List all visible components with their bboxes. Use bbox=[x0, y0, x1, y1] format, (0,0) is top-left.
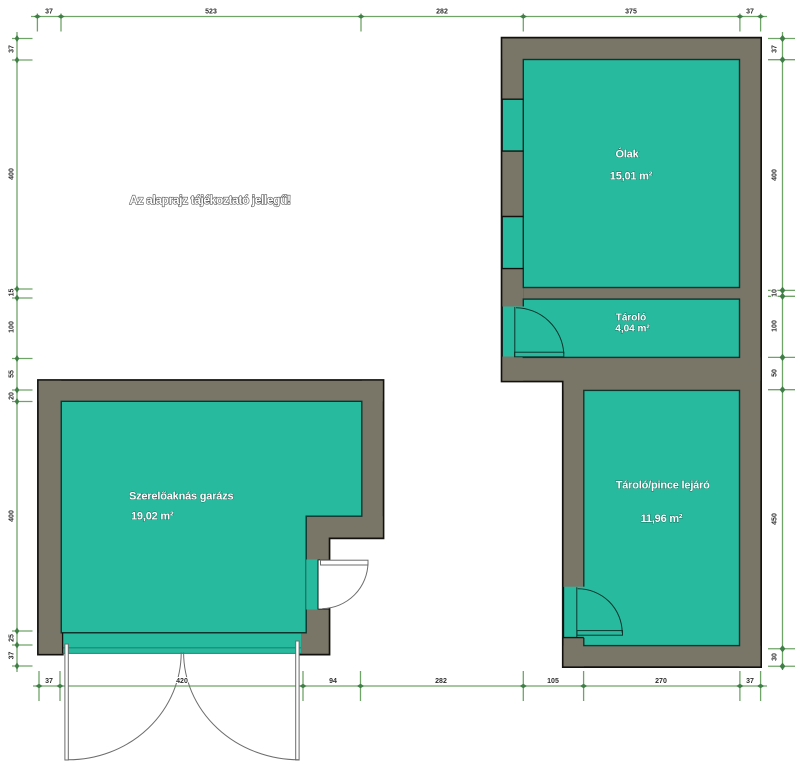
svg-text:11,96 m²: 11,96 m² bbox=[641, 513, 683, 525]
svg-text:37: 37 bbox=[772, 45, 779, 53]
svg-text:37: 37 bbox=[746, 678, 754, 685]
svg-text:30: 30 bbox=[772, 653, 779, 661]
svg-text:400: 400 bbox=[9, 168, 16, 180]
svg-text:Szerelőaknás garázs: Szerelőaknás garázs bbox=[129, 491, 234, 503]
svg-text:55: 55 bbox=[9, 370, 16, 378]
svg-text:100: 100 bbox=[772, 320, 779, 332]
svg-text:400: 400 bbox=[772, 169, 779, 181]
svg-text:400: 400 bbox=[9, 510, 16, 522]
svg-text:37: 37 bbox=[746, 9, 754, 16]
svg-text:4,04 m²: 4,04 m² bbox=[615, 324, 650, 335]
svg-text:270: 270 bbox=[655, 678, 667, 685]
svg-text:282: 282 bbox=[435, 678, 447, 685]
svg-text:50: 50 bbox=[772, 369, 779, 377]
svg-text:94: 94 bbox=[329, 678, 337, 685]
svg-text:420: 420 bbox=[176, 678, 188, 685]
svg-text:100: 100 bbox=[9, 321, 16, 333]
svg-text:375: 375 bbox=[625, 9, 637, 16]
svg-text:25: 25 bbox=[9, 634, 16, 642]
svg-text:37: 37 bbox=[9, 652, 16, 660]
svg-text:282: 282 bbox=[436, 9, 448, 16]
svg-text:Tároló/pince lejáró: Tároló/pince lejáró bbox=[616, 480, 710, 492]
svg-text:15,01 m²: 15,01 m² bbox=[610, 171, 653, 183]
svg-text:10: 10 bbox=[772, 289, 779, 297]
svg-text:19,02 m²: 19,02 m² bbox=[131, 511, 174, 523]
svg-text:37: 37 bbox=[45, 678, 53, 685]
svg-text:105: 105 bbox=[547, 678, 559, 685]
svg-text:20: 20 bbox=[9, 392, 16, 400]
svg-text:Ólak: Ólak bbox=[615, 148, 639, 161]
svg-text:37: 37 bbox=[9, 45, 16, 53]
svg-text:Tároló: Tároló bbox=[616, 313, 647, 324]
svg-text:Az alaprajz tájékoztató jelleg: Az alaprajz tájékoztató jellegű! bbox=[129, 193, 290, 207]
svg-text:37: 37 bbox=[45, 9, 53, 16]
svg-text:15: 15 bbox=[9, 289, 16, 297]
svg-text:450: 450 bbox=[772, 513, 779, 525]
svg-text:523: 523 bbox=[205, 9, 217, 16]
